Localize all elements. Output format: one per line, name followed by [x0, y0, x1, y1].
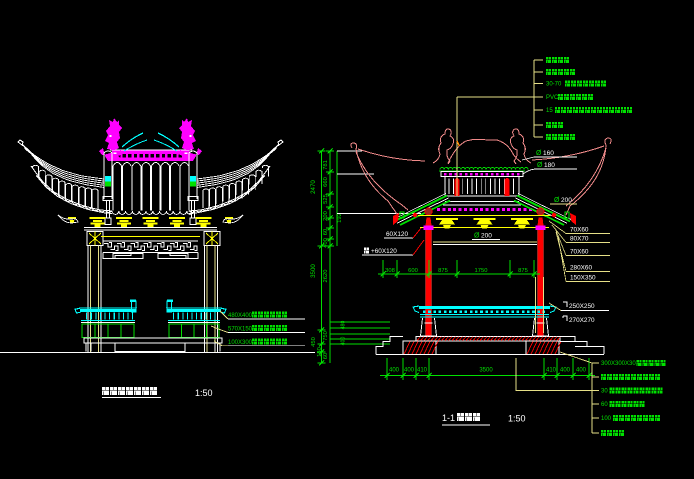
svg-text:410: 410 — [417, 368, 428, 374]
svg-text:3500: 3500 — [479, 368, 493, 374]
svg-text:70X60: 70X60 — [570, 249, 589, 256]
svg-text:60: 60 — [323, 229, 329, 235]
svg-text:525: 525 — [323, 194, 329, 204]
svg-text:30-70: 30-70 — [546, 82, 562, 88]
svg-text:450: 450 — [311, 337, 317, 347]
svg-text:410: 410 — [546, 368, 557, 374]
svg-text:300X300X30: 300X300X30 — [601, 361, 636, 367]
svg-text:180: 180 — [544, 162, 555, 169]
svg-text:750: 750 — [323, 331, 329, 341]
svg-text:Ø: Ø — [554, 197, 560, 204]
svg-text:100: 100 — [601, 416, 612, 422]
svg-text:160: 160 — [543, 150, 554, 157]
svg-text:30: 30 — [601, 389, 608, 395]
svg-text:2470: 2470 — [310, 180, 317, 194]
svg-text:192: 192 — [337, 213, 343, 223]
svg-text:1750: 1750 — [475, 268, 488, 274]
svg-text:400: 400 — [576, 368, 587, 374]
svg-text:480: 480 — [341, 321, 347, 330]
svg-text:PVC: PVC — [546, 95, 559, 101]
svg-text:660: 660 — [323, 177, 329, 187]
svg-text:200: 200 — [323, 211, 329, 221]
svg-text:600: 600 — [408, 268, 418, 274]
svg-text:2620: 2620 — [323, 270, 329, 283]
svg-text:200: 200 — [481, 233, 492, 240]
svg-text:60: 60 — [601, 402, 608, 408]
svg-text:400: 400 — [560, 368, 571, 374]
svg-text:150X350: 150X350 — [570, 275, 596, 282]
svg-text:1-1: 1-1 — [442, 413, 455, 423]
svg-text:60: 60 — [323, 353, 329, 359]
svg-text:875: 875 — [438, 268, 448, 274]
svg-text:570X150: 570X150 — [228, 327, 253, 333]
svg-text:400: 400 — [323, 238, 329, 248]
svg-text:400: 400 — [341, 337, 347, 346]
svg-text:+60X120: +60X120 — [371, 248, 397, 255]
svg-text:400: 400 — [389, 368, 400, 374]
svg-text:3500: 3500 — [310, 264, 317, 278]
svg-text:781: 781 — [323, 160, 329, 170]
svg-text:308: 308 — [385, 268, 395, 274]
svg-text:Ø: Ø — [537, 162, 543, 169]
svg-text:250X250: 250X250 — [569, 303, 595, 310]
svg-text:1:50: 1:50 — [508, 414, 526, 424]
svg-text:400: 400 — [404, 368, 415, 374]
svg-text:200: 200 — [561, 197, 572, 204]
svg-text:15: 15 — [546, 108, 553, 114]
svg-text:Ø: Ø — [474, 233, 480, 240]
svg-text:Ø: Ø — [536, 150, 542, 157]
svg-text:480X400: 480X400 — [228, 313, 253, 319]
svg-text:875: 875 — [518, 268, 528, 274]
svg-text:60X120: 60X120 — [386, 231, 408, 238]
svg-text:270X270: 270X270 — [569, 317, 595, 324]
svg-text:1:50: 1:50 — [195, 388, 213, 398]
svg-text:80X70: 80X70 — [570, 236, 589, 243]
svg-text:280X60: 280X60 — [570, 265, 592, 272]
svg-text:70X60: 70X60 — [570, 227, 589, 234]
svg-text:100X300: 100X300 — [228, 340, 253, 346]
